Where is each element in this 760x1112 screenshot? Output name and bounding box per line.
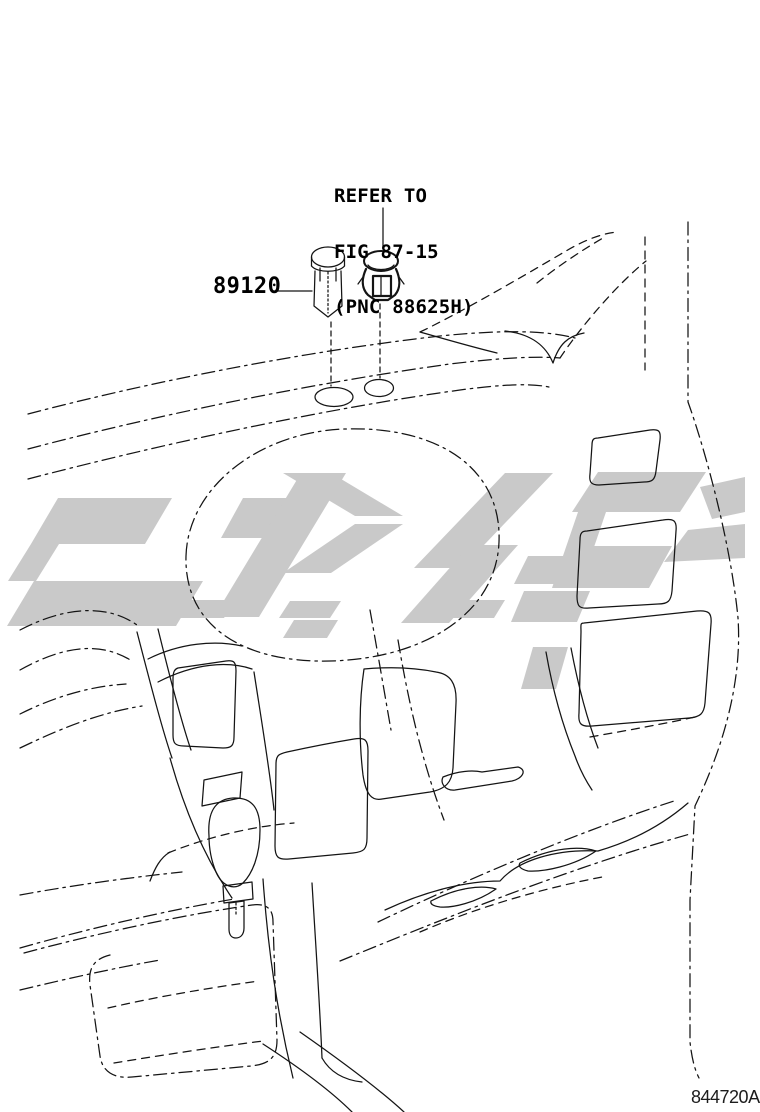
mounting-hole-left	[315, 388, 353, 407]
gear-shifter	[209, 798, 260, 938]
refer-note-line-2: FIG 87-15	[334, 243, 474, 262]
diagram-code: 844720A	[691, 1088, 760, 1106]
part-number-label[interactable]: 89120	[213, 276, 281, 298]
refer-note-line-1: REFER TO	[334, 187, 474, 206]
refer-note: REFER TO FIG 87-15 (PNC 88625H)	[334, 150, 474, 354]
parts-diagram-page: REFER TO FIG 87-15 (PNC 88625H) 89120 84…	[0, 0, 760, 1112]
mounting-hole-right	[365, 380, 394, 397]
refer-note-line-3: (PNC 88625H)	[334, 298, 474, 317]
